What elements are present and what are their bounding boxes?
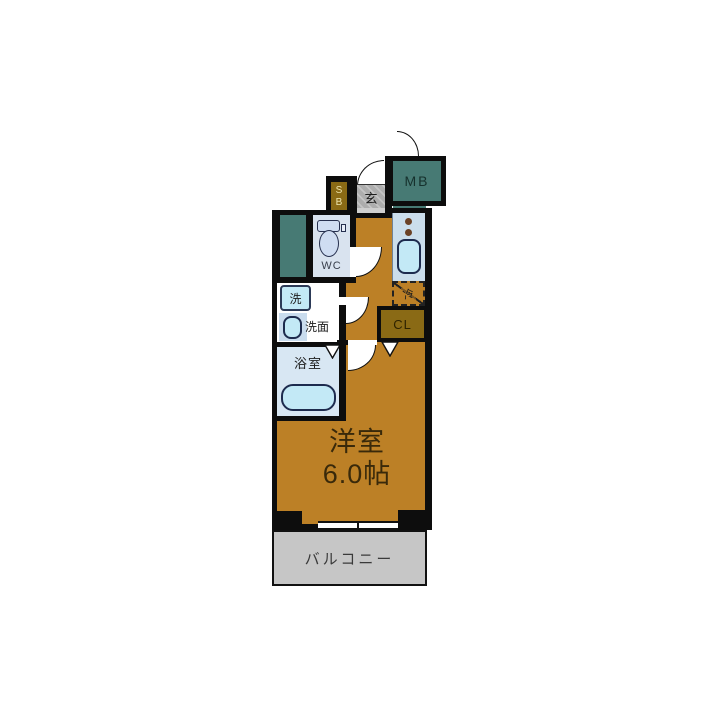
kitchen-counter — [392, 213, 425, 281]
wall — [350, 210, 356, 247]
entrance-genkan: 玄 — [357, 184, 385, 209]
shoe-box: S B — [331, 182, 347, 212]
main-room-size: 6.0帖 — [323, 459, 392, 491]
entrance-label: 玄 — [364, 188, 377, 207]
meter-box: MB — [388, 156, 446, 206]
vanity-label: 洗面 — [305, 318, 329, 335]
bathtub-icon — [281, 384, 336, 411]
shoe-box-letter-s: S — [336, 185, 343, 197]
toilet-icon — [317, 220, 346, 260]
pipe-space — [276, 211, 310, 281]
vanity-doorway — [339, 297, 346, 305]
wall — [337, 340, 348, 345]
closet-folding-door-icon — [381, 341, 399, 357]
bathroom-label: 浴室 — [294, 353, 322, 372]
closet-label: CL — [393, 317, 412, 332]
sink-icon — [283, 316, 302, 339]
stove-burner-icon — [405, 218, 412, 225]
wall — [339, 283, 346, 347]
closet: CL — [377, 306, 428, 342]
stove-burner-icon — [405, 229, 412, 236]
wall — [339, 342, 346, 421]
wall — [357, 213, 392, 218]
vanity-room: 洗 洗面 — [277, 283, 339, 342]
wall — [272, 416, 346, 421]
balcony-label: バルコニー — [305, 548, 395, 569]
balcony: バルコニー — [272, 530, 427, 586]
entry-door-arc-icon — [397, 131, 419, 156]
window-icon — [318, 521, 398, 530]
meter-box-label: MB — [405, 173, 430, 189]
floorplan-canvas: MB S B 玄 WC — [0, 0, 719, 719]
wc-label: WC — [313, 258, 350, 274]
main-room-name: 洋室 — [329, 427, 385, 459]
entry-inner-door-arc-icon — [357, 160, 384, 186]
shoe-box-letter-b: B — [336, 197, 343, 209]
pillar — [277, 511, 302, 525]
wall — [385, 156, 392, 213]
refrigerator-label: 冷 — [401, 284, 416, 303]
washer-label: 洗 — [289, 290, 301, 307]
washer-pan: 洗 — [280, 285, 311, 311]
wc-room: WC — [313, 215, 350, 277]
main-room-label: 洋室 6.0帖 — [287, 424, 427, 494]
kitchen-sink-icon — [397, 239, 421, 274]
vanity-counter — [279, 313, 307, 341]
pillar — [398, 510, 425, 525]
refrigerator-space: 冷 — [392, 281, 425, 306]
